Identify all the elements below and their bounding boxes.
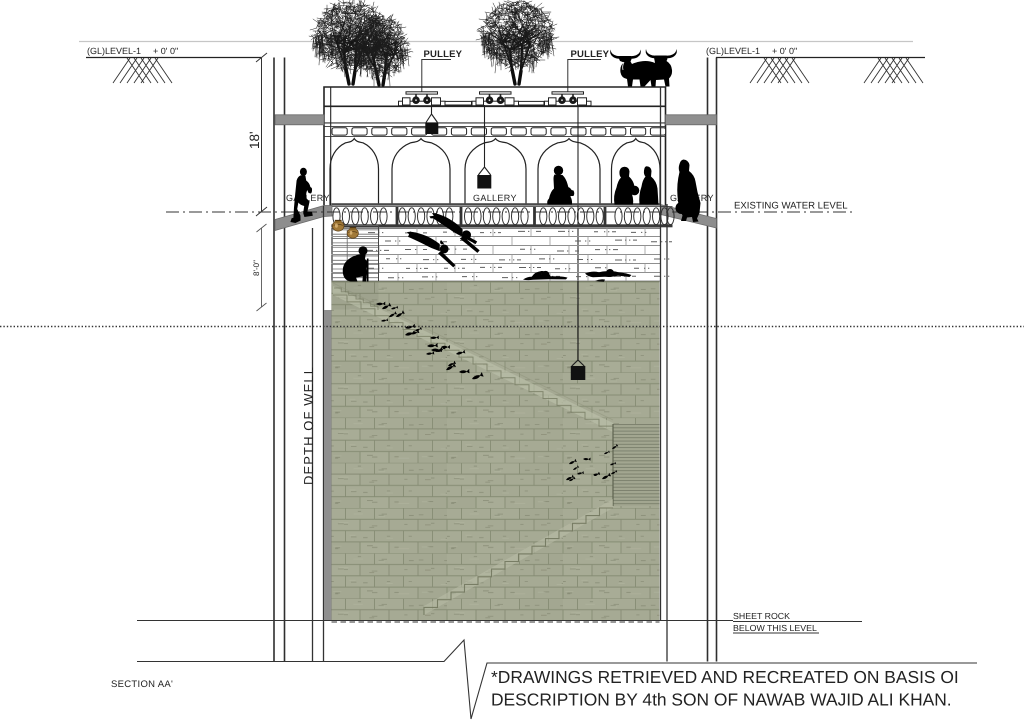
svg-text:SECTION AA': SECTION AA' xyxy=(111,679,173,690)
svg-text:DESCRIPTION BY 4th SON OF NAWA: DESCRIPTION BY 4th SON OF NAWAB WAJID AL… xyxy=(491,690,952,710)
svg-text:PULLEY: PULLEY xyxy=(424,49,463,60)
svg-text:+ 0' 0": + 0' 0" xyxy=(772,46,797,56)
svg-text:PULLEY: PULLEY xyxy=(571,49,610,60)
svg-text:BELOW THIS LEVEL: BELOW THIS LEVEL xyxy=(733,623,817,633)
svg-text:SHEET ROCK: SHEET ROCK xyxy=(733,611,790,621)
svg-text:18': 18' xyxy=(247,131,262,149)
svg-text:*DRAWINGS RETRIEVED AND RECREA: *DRAWINGS RETRIEVED AND RECREATED ON BAS… xyxy=(491,667,959,687)
svg-text:DEPTH OF WELL: DEPTH OF WELL xyxy=(301,366,316,485)
svg-text:+ 0' 0": + 0' 0" xyxy=(153,46,178,56)
svg-text:EXISTING WATER LEVEL: EXISTING WATER LEVEL xyxy=(734,201,848,212)
svg-text:8'-0": 8'-0" xyxy=(252,260,261,276)
svg-text:(GL)LEVEL-1: (GL)LEVEL-1 xyxy=(706,46,760,56)
svg-text:GALLERY: GALLERY xyxy=(473,193,517,203)
svg-text:(GL)LEVEL-1: (GL)LEVEL-1 xyxy=(87,46,141,56)
